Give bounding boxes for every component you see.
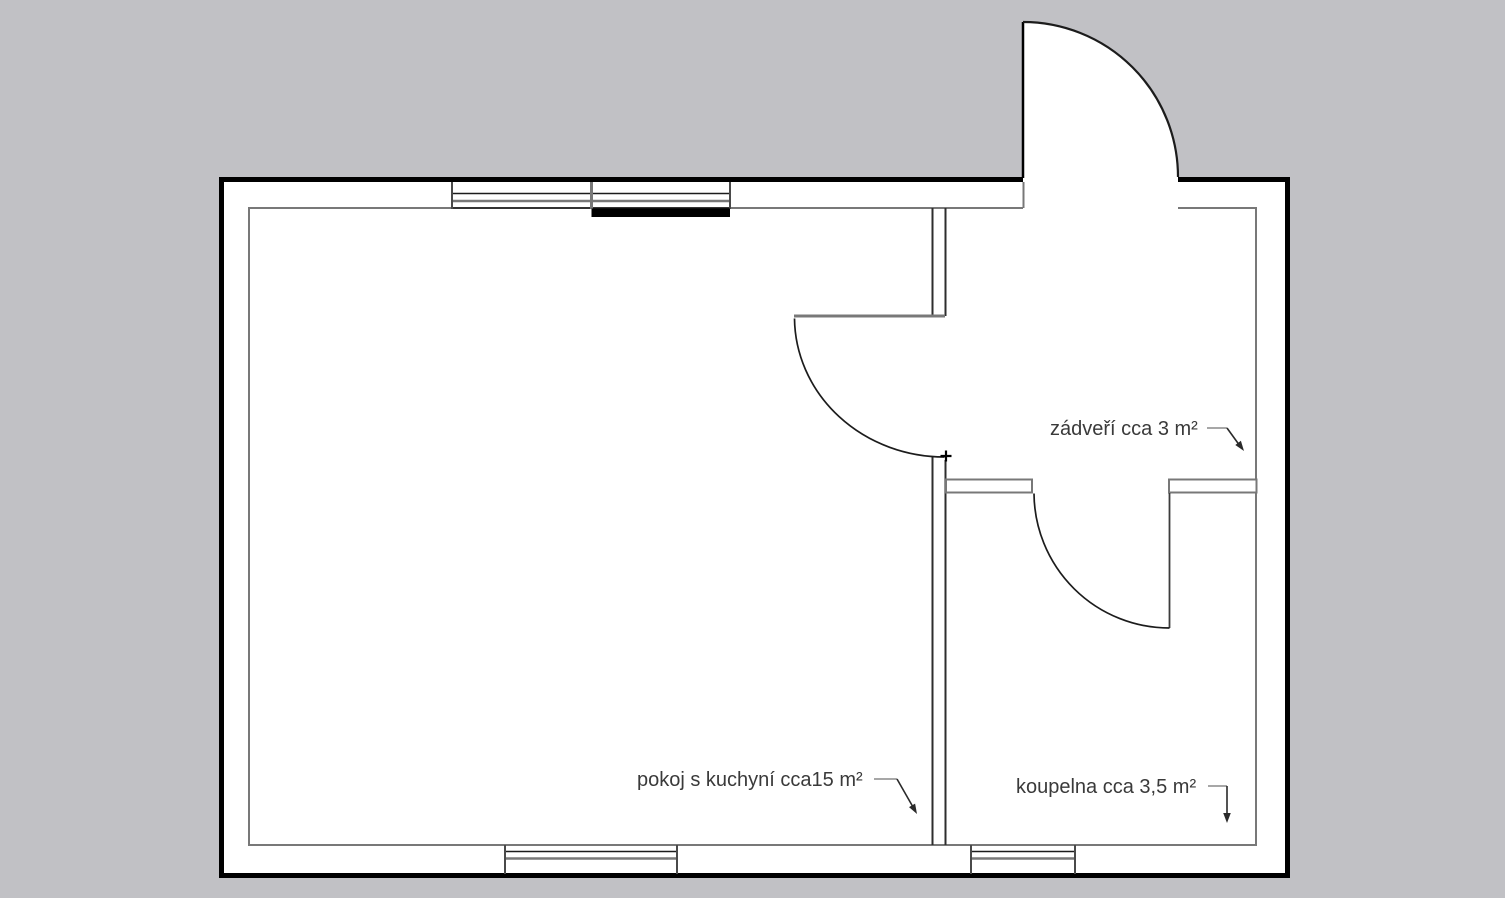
- floor-plan-page: pokoj s kuchyní cca15 m² zádveří cca 3 m…: [0, 0, 1505, 898]
- label-room-kitchen: pokoj s kuchyní cca15 m²: [637, 768, 863, 792]
- label-bathroom: koupelna cca 3,5 m²: [1016, 775, 1196, 799]
- label-vestibule: zádveří cca 3 m²: [1050, 417, 1198, 441]
- floor-plan-drawing: [0, 0, 1505, 898]
- wall-band-right: [1169, 480, 1257, 493]
- wall-band-left: [946, 480, 1032, 493]
- kitchen-counter-bar: [592, 209, 731, 218]
- entrance-door-swing-area: [1023, 22, 1178, 178]
